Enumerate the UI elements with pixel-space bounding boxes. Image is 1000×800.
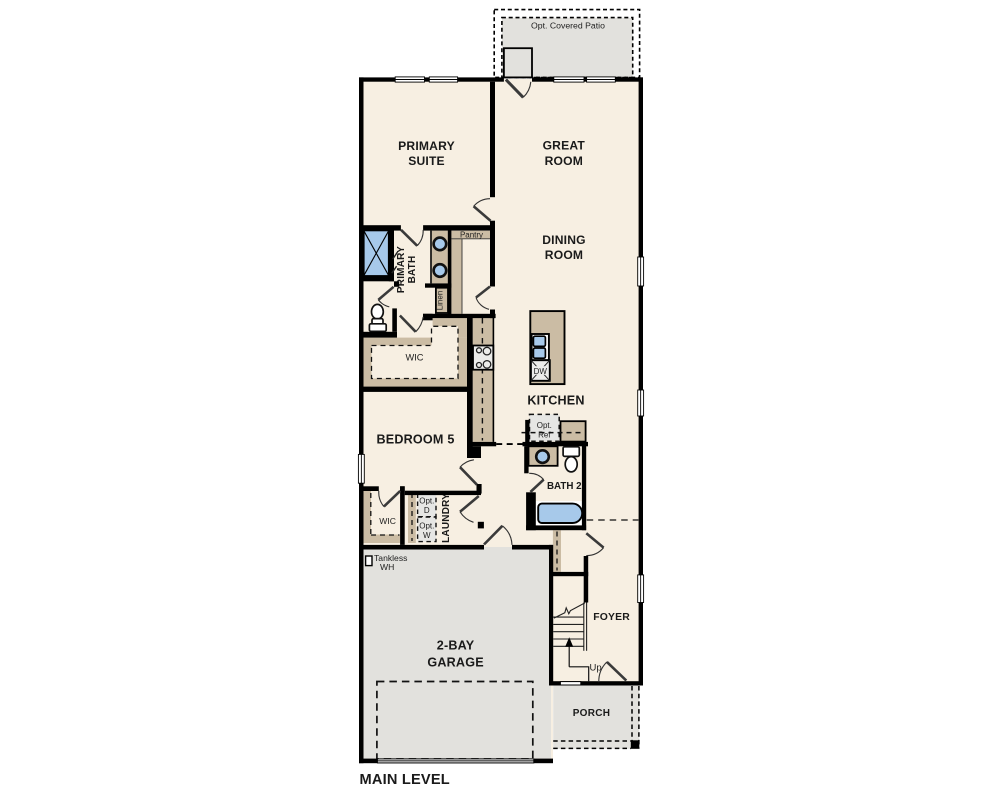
- svg-text:Linen: Linen: [436, 291, 445, 311]
- svg-text:WH: WH: [380, 562, 394, 572]
- svg-text:SUITE: SUITE: [408, 154, 445, 168]
- svg-text:FOYER: FOYER: [593, 612, 630, 623]
- svg-text:PORCH: PORCH: [573, 708, 611, 719]
- svg-text:DINING: DINING: [542, 233, 586, 247]
- svg-text:Opt. Covered Patio: Opt. Covered Patio: [531, 20, 605, 30]
- svg-text:ROOM: ROOM: [545, 248, 583, 262]
- svg-text:BEDROOM 5: BEDROOM 5: [376, 433, 454, 447]
- svg-text:WIC: WIC: [405, 352, 423, 362]
- svg-text:WIC: WIC: [379, 516, 396, 526]
- svg-text:PRIMARY: PRIMARY: [398, 139, 455, 153]
- svg-text:DW: DW: [534, 367, 548, 376]
- svg-text:D: D: [424, 506, 430, 515]
- svg-text:BATH: BATH: [407, 256, 418, 284]
- svg-text:GARAGE: GARAGE: [427, 656, 483, 670]
- svg-text:Opt.: Opt.: [537, 421, 552, 430]
- svg-text:GREAT: GREAT: [543, 138, 586, 152]
- svg-text:W: W: [423, 531, 431, 540]
- svg-text:BATH 2: BATH 2: [547, 481, 582, 492]
- svg-text:2-BAY: 2-BAY: [437, 639, 475, 653]
- svg-text:Ref: Ref: [538, 430, 551, 439]
- svg-text:Pantry: Pantry: [460, 230, 483, 239]
- svg-text:Opt.: Opt.: [419, 522, 434, 531]
- svg-text:LAUNDRY: LAUNDRY: [441, 493, 452, 543]
- svg-text:MAIN LEVEL: MAIN LEVEL: [360, 772, 450, 788]
- svg-text:ROOM: ROOM: [545, 154, 583, 168]
- svg-text:Opt.: Opt.: [419, 497, 434, 506]
- svg-text:KITCHEN: KITCHEN: [527, 394, 584, 408]
